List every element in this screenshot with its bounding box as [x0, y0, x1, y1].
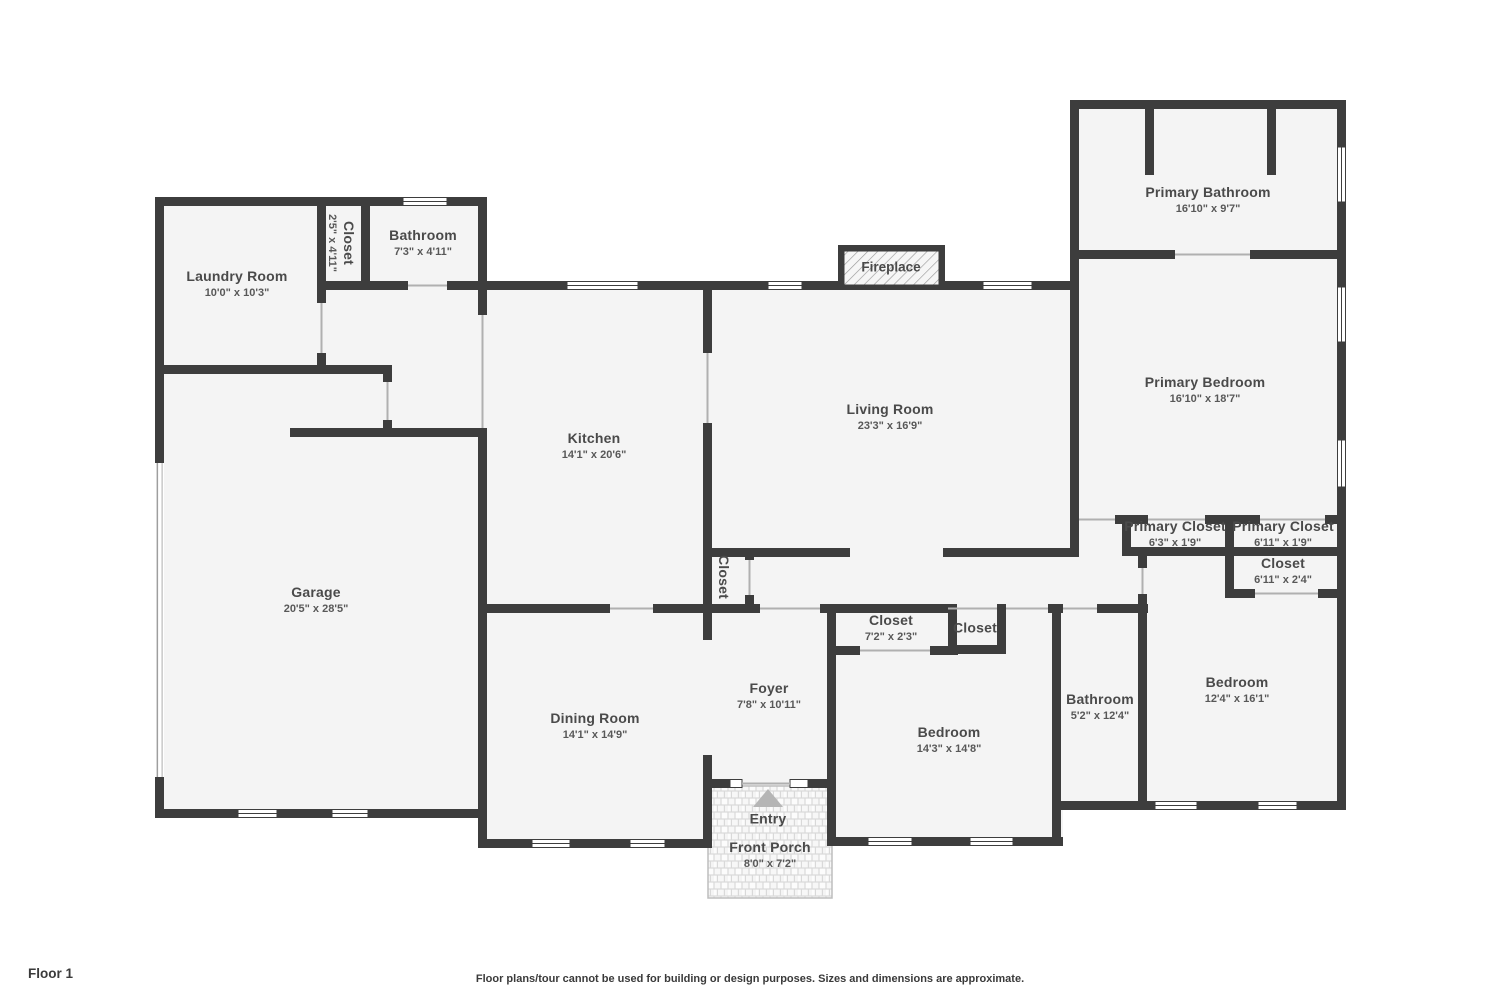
floor-plan: Laundry Room 10'0" x 10'3" Closet 2'5" x… — [0, 0, 1500, 1000]
garage-door — [155, 463, 164, 777]
floor-plan-drawing — [0, 0, 1500, 1000]
fireplace — [838, 245, 945, 290]
disclaimer-text: Floor plans/tour cannot be used for buil… — [476, 973, 1024, 985]
floor-selector-label: Floor 1 — [28, 966, 73, 981]
room-floors — [155, 100, 1345, 848]
